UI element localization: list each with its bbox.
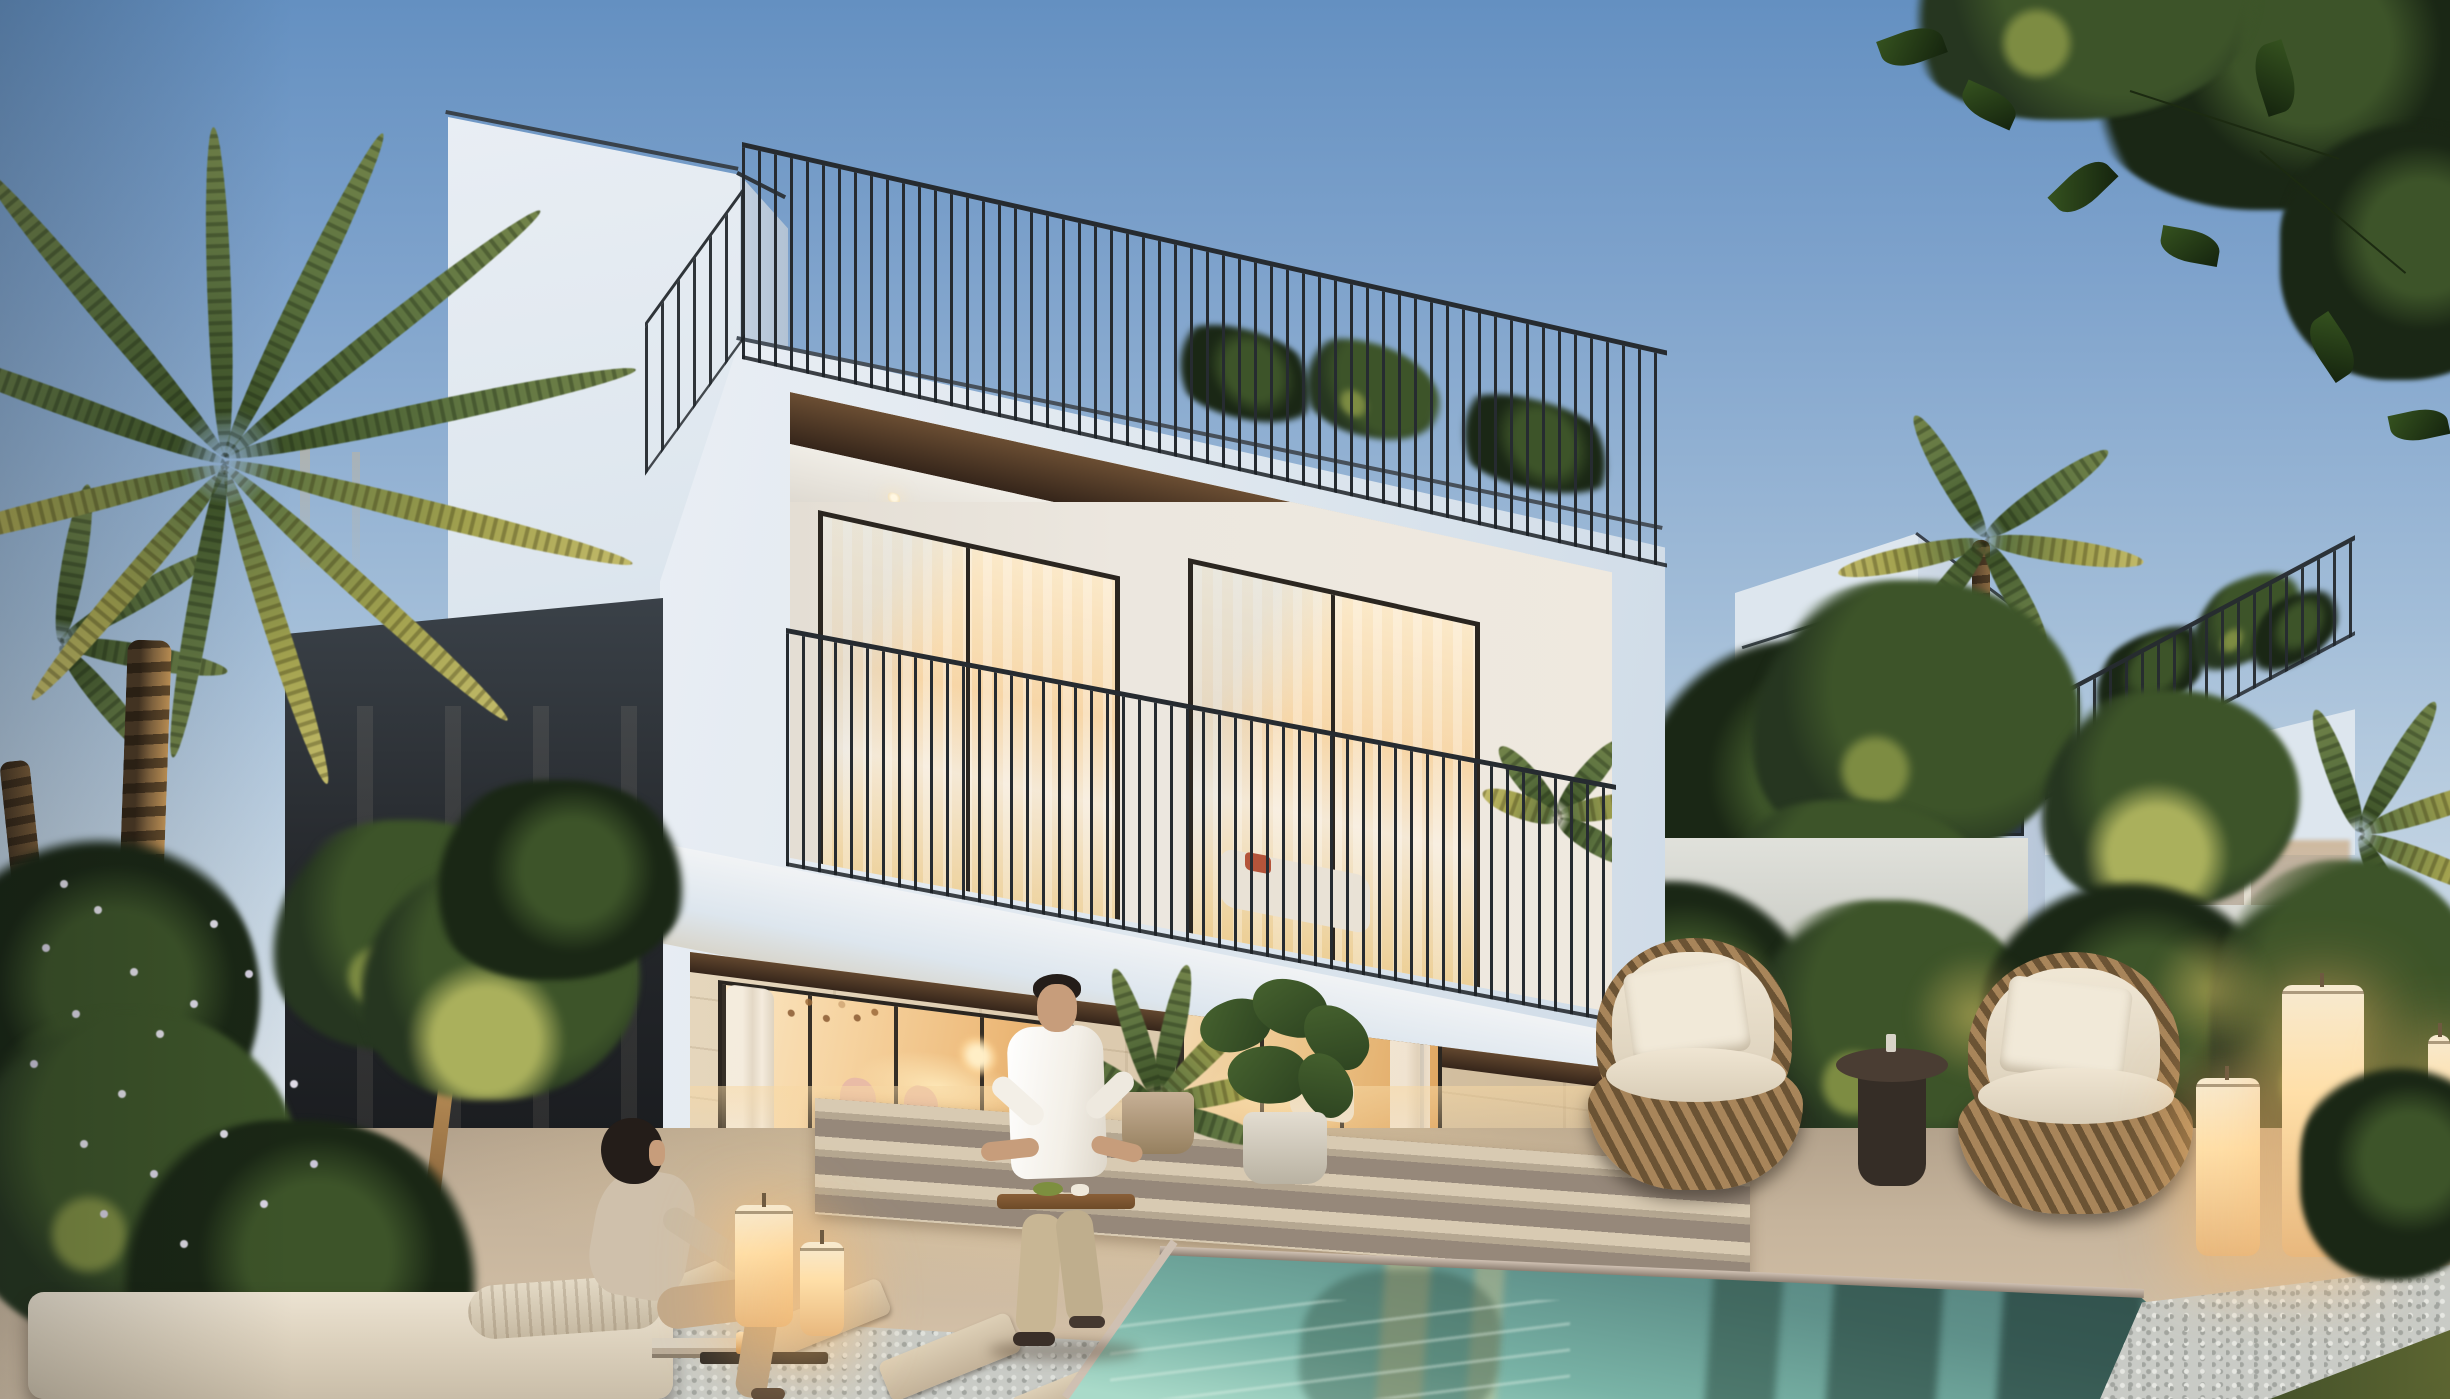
man-leg — [1054, 1208, 1105, 1326]
shrub-right — [2300, 1060, 2450, 1280]
side-table — [1836, 1048, 1948, 1194]
lantern — [735, 1205, 793, 1327]
tray-food — [1071, 1184, 1089, 1196]
villa-dusk-render — [0, 0, 2450, 1399]
palm-crown-right — [1890, 470, 2080, 590]
tray-food — [1033, 1182, 1063, 1196]
flower-blossoms — [60, 880, 68, 888]
lantern — [2196, 1078, 2260, 1256]
man-walking-with-tray — [975, 972, 1150, 1357]
palm-crown — [0, 300, 460, 620]
man-shoe — [1013, 1332, 1055, 1346]
lantern — [800, 1242, 844, 1336]
man-face — [1037, 984, 1077, 1032]
glass-on-table — [1886, 1034, 1896, 1052]
woman-face — [649, 1140, 665, 1166]
man-tray — [997, 1194, 1135, 1209]
man-shoe — [1069, 1316, 1105, 1328]
pool-ripples — [1110, 1300, 1570, 1399]
woman-foot — [751, 1388, 785, 1399]
man-shadow — [989, 1340, 1139, 1362]
